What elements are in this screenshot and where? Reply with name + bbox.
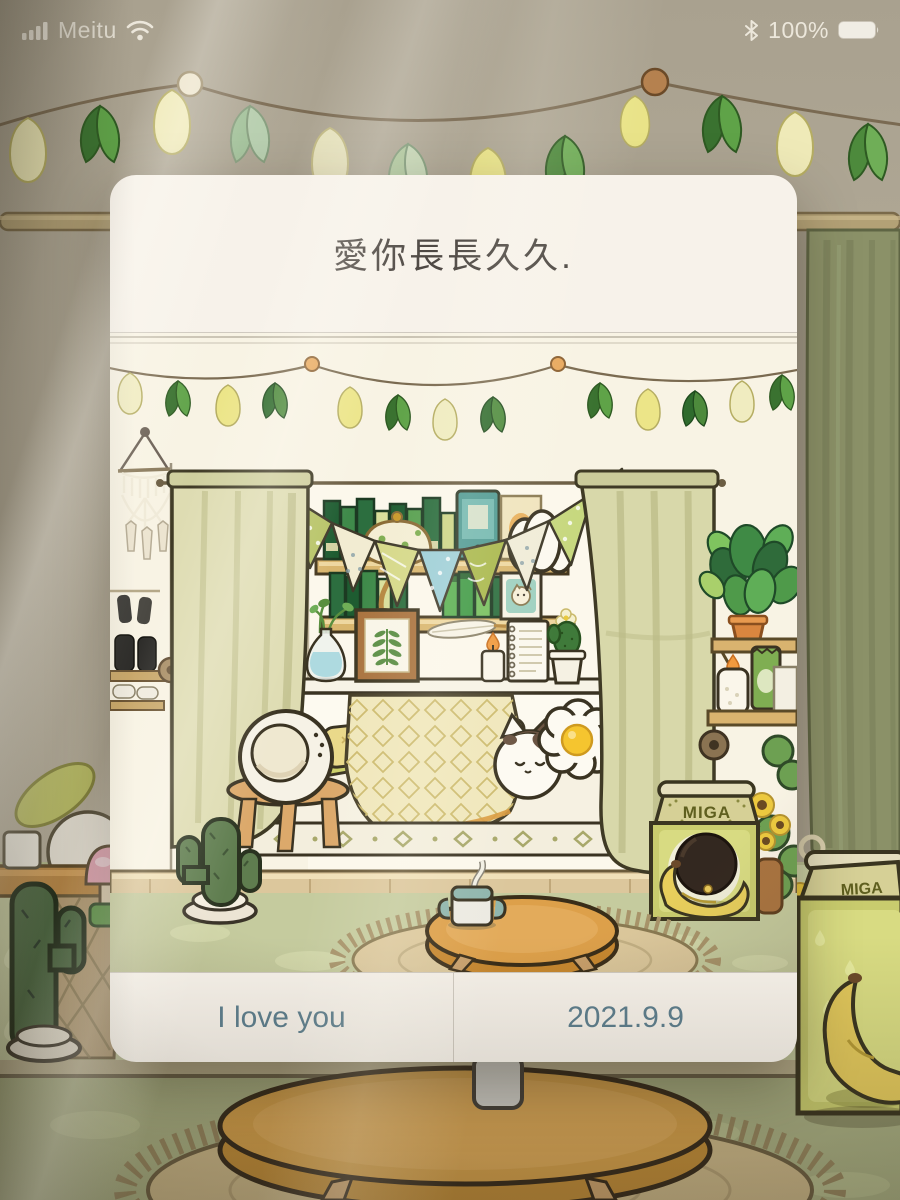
status-bar: Meitu 100% — [0, 0, 900, 54]
status-bar-left: Meitu — [22, 17, 154, 44]
bluetooth-icon — [744, 20, 759, 41]
card-photo: MIGA — [110, 333, 797, 972]
action-date[interactable]: 2021.9.9 — [453, 972, 797, 1062]
card-title: 愛你長長久久. — [333, 228, 574, 279]
card-title-area: 愛你長長久久. — [110, 175, 797, 333]
carrier-label: Meitu — [58, 17, 117, 44]
background-miga-carton: MIGA — [789, 837, 900, 1128]
action-i-love-you[interactable]: I love you — [110, 972, 453, 1062]
memory-widget-card[interactable]: 愛你長長久久. — [110, 175, 797, 1062]
status-bar-right: 100% — [744, 17, 880, 44]
signal-strength-icon — [22, 21, 49, 40]
big-round-table — [220, 1068, 710, 1200]
phone-screen: MIGA Meitu — [0, 0, 900, 1200]
card-action-row: I love you 2021.9.9 — [110, 972, 797, 1062]
battery-percent-label: 100% — [768, 17, 829, 44]
gray-cup — [474, 1056, 522, 1108]
battery-full-icon — [838, 20, 880, 40]
right-wall-curtain — [793, 230, 900, 873]
wifi-icon — [126, 20, 154, 41]
